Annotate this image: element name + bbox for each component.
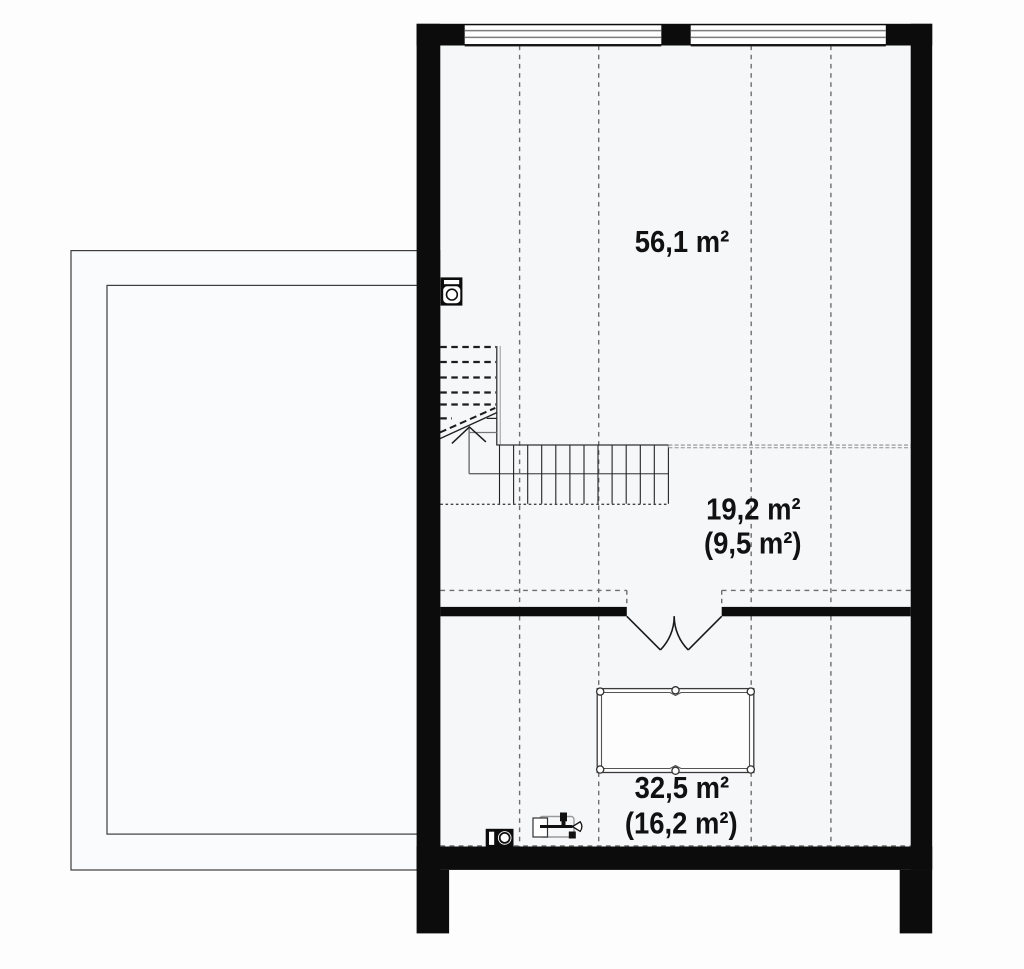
svg-text:(9,5 m²): (9,5 m²)	[704, 526, 802, 561]
svg-text:56,1 m²: 56,1 m²	[635, 224, 730, 259]
svg-text:(16,2 m²): (16,2 m²)	[625, 806, 738, 841]
svg-text:19,2 m²: 19,2 m²	[706, 491, 801, 526]
svg-text:32,5 m²: 32,5 m²	[635, 770, 730, 805]
